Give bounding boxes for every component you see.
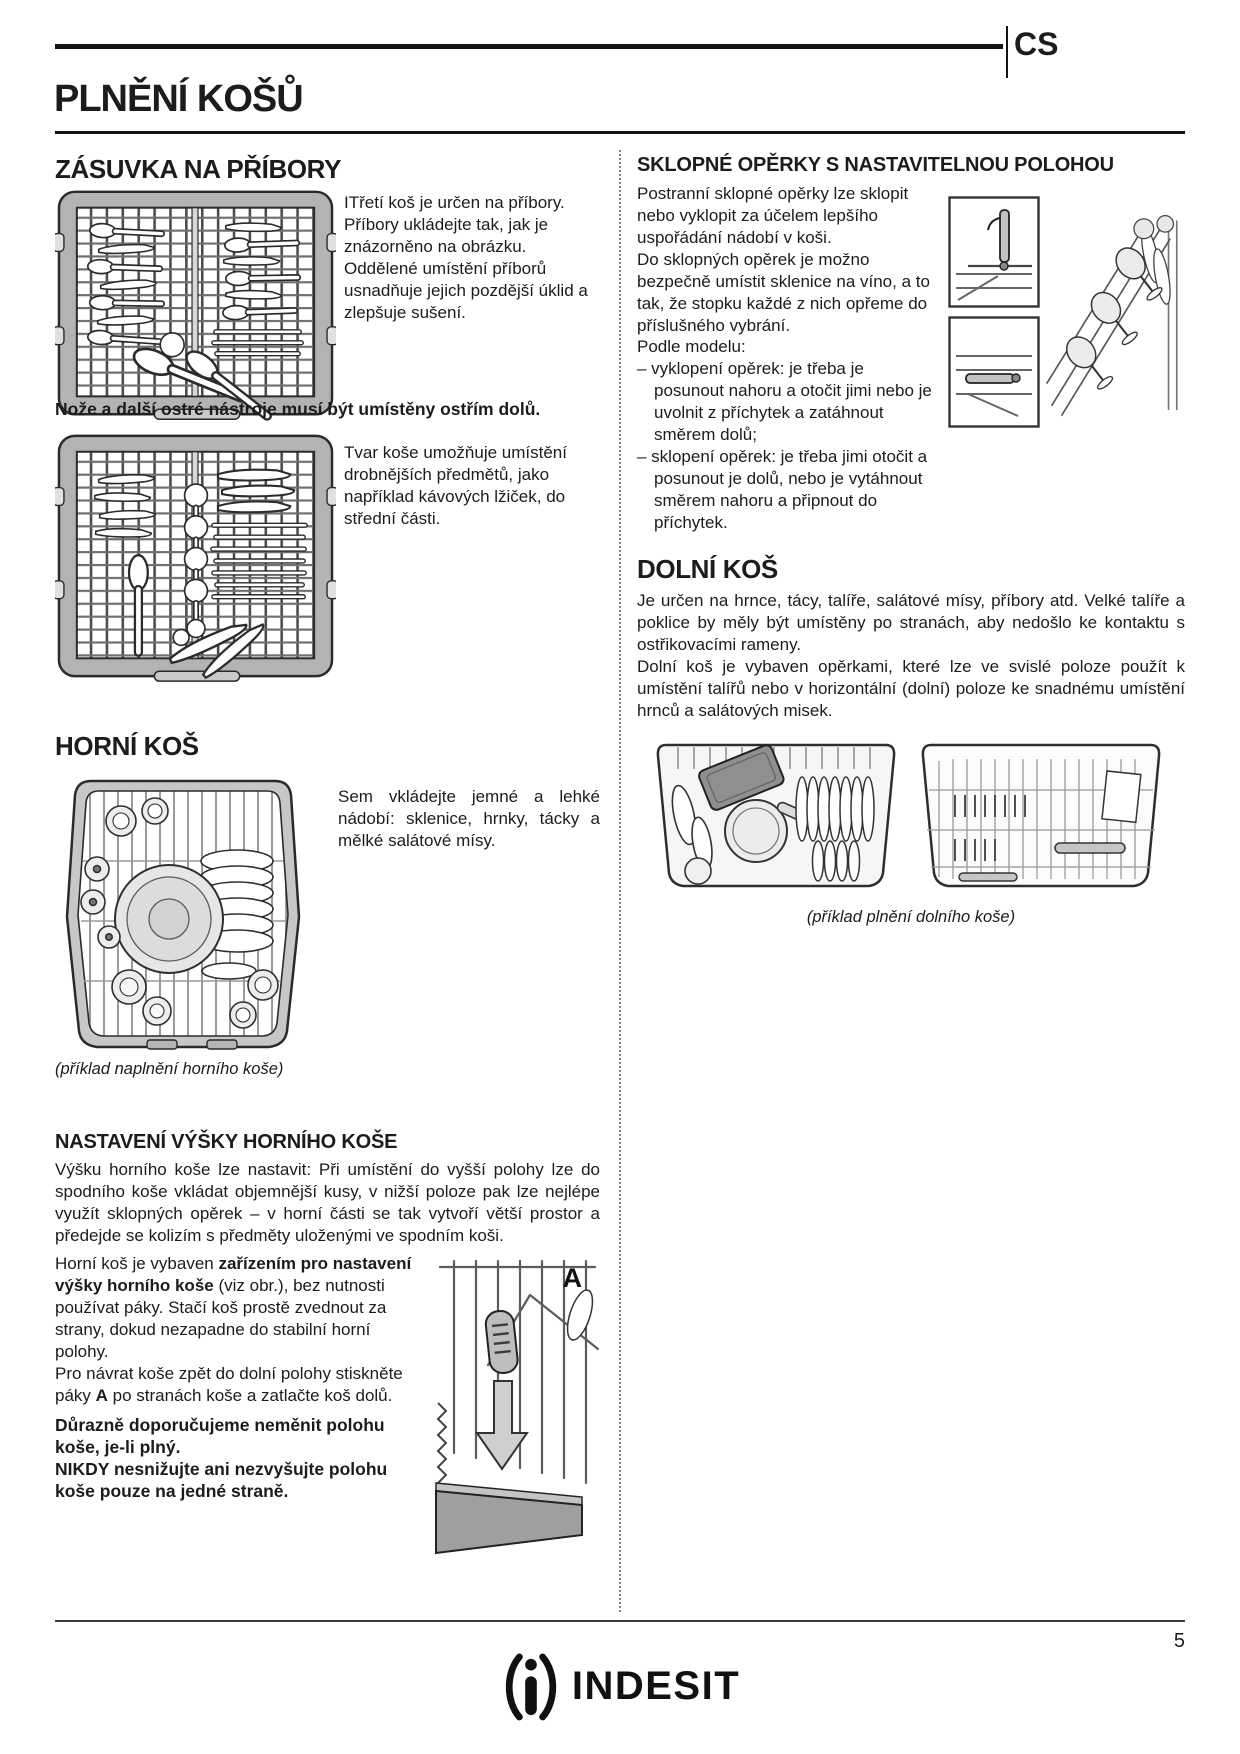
cutlery-tray-figure-2	[55, 431, 336, 689]
cutlery-paragraph-1: ITřetí koš je určen na příbory. Příbory …	[344, 192, 612, 258]
lower-basket-caption: (příklad plnění dolního koše)	[637, 908, 1185, 927]
height-return-lever-label: A	[96, 1386, 108, 1405]
lower-basket-text-block: Je určen na hrnce, tácy, talíře, salátov…	[637, 590, 1185, 722]
tipup-support-down-figure	[948, 316, 1040, 428]
wine-glasses-figure	[1045, 190, 1185, 443]
figure-label-a: A	[563, 1263, 583, 1293]
upper-basket-caption: (příklad naplnění horního koše)	[55, 1060, 283, 1079]
upper-basket-paragraph: Sem vkládejte jemné a lehké nádobí: skle…	[338, 786, 600, 852]
lower-basket-paragraph-1: Je určen na hrnce, tácy, talíře, salátov…	[637, 590, 1185, 656]
cutlery-text-block: ITřetí koš je určen na příbory. Příbory …	[344, 192, 612, 324]
tipup-bullet-1: – vyklopení opěrek: je třeba je posunout…	[637, 358, 937, 446]
section-heading-cutlery-tray: ZÁSUVKA NA PŘÍBORY	[55, 154, 341, 185]
height-return-post: po stranách koše a zatlačte koš dolů.	[108, 1386, 392, 1405]
cutlery-paragraph-2: Oddělené umístění příborů usnadňuje jeji…	[344, 258, 612, 324]
height-device-pre: Horní koš je vybaven	[55, 1254, 218, 1273]
tipup-paragraph-1: Postranní sklopné opěrky lze sklopit neb…	[637, 183, 937, 249]
brand-wordmark: INDESIT	[572, 1664, 740, 1709]
language-separator-line	[1006, 26, 1008, 78]
title-rule	[55, 131, 1185, 134]
section-heading-tipup-supports: SKLOPNÉ OPĚRKY S NASTAVITELNOU POLOHOU	[637, 154, 1114, 177]
tipup-paragraph-2: Do sklopných opěrek je možno bezpečně um…	[637, 249, 937, 337]
section-heading-upper-basket: HORNÍ KOŠ	[55, 731, 199, 762]
small-items-paragraph: Tvar koše umožňuje umístění drobnějších …	[344, 442, 606, 530]
tipup-text-block: Postranní sklopné opěrky lze sklopit neb…	[637, 183, 937, 534]
height-detail-block: A Horní koš je vybaven zařízením pro nas…	[55, 1253, 600, 1564]
small-items-text-block: Tvar koše umožňuje umístění drobnějších …	[344, 442, 606, 530]
manual-page: CS PLNĚNÍ KOŠŮ ZÁSUVKA NA PŘÍBORY	[0, 0, 1240, 1754]
brand-logo: INDESIT	[0, 1650, 1240, 1722]
upper-basket-figure	[57, 769, 309, 1057]
upper-basket-text-block: Sem vkládejte jemné a lehké nádobí: skle…	[338, 786, 600, 852]
language-badge: CS	[1014, 26, 1058, 63]
height-intro-text: Výšku horního koše lze nastavit: Při umí…	[55, 1159, 600, 1247]
height-adjuster-figure: A	[430, 1253, 600, 1560]
section-heading-height-adjust: NASTAVENÍ VÝŠKY HORNÍHO KOŠE	[55, 1131, 397, 1154]
lower-basket-loaded-figure	[650, 735, 902, 897]
section-heading-lower-basket: DOLNÍ KOŠ	[637, 554, 778, 585]
page-title: PLNĚNÍ KOŠŮ	[54, 78, 303, 121]
tipup-paragraph-3: Podle modelu:	[637, 336, 937, 358]
height-intro-paragraph: Výšku horního koše lze nastavit: Při umí…	[55, 1159, 600, 1247]
footer-rule	[55, 1620, 1185, 1622]
tipup-bullet-2: – sklopení opěrek: je třeba jimi otočit …	[637, 446, 937, 534]
column-divider	[619, 150, 621, 1612]
indesit-logo-icon	[500, 1651, 562, 1721]
lower-basket-paragraph-2: Dolní koš je vybaven opěrkami, které lze…	[637, 656, 1185, 722]
header-rule	[55, 44, 1003, 49]
lower-basket-empty-figure	[915, 735, 1167, 897]
knives-warning: Nože a další ostré nástroje musí být umí…	[55, 399, 600, 421]
cutlery-tray-figure-1	[55, 187, 336, 427]
tipup-support-up-figure	[948, 196, 1040, 308]
